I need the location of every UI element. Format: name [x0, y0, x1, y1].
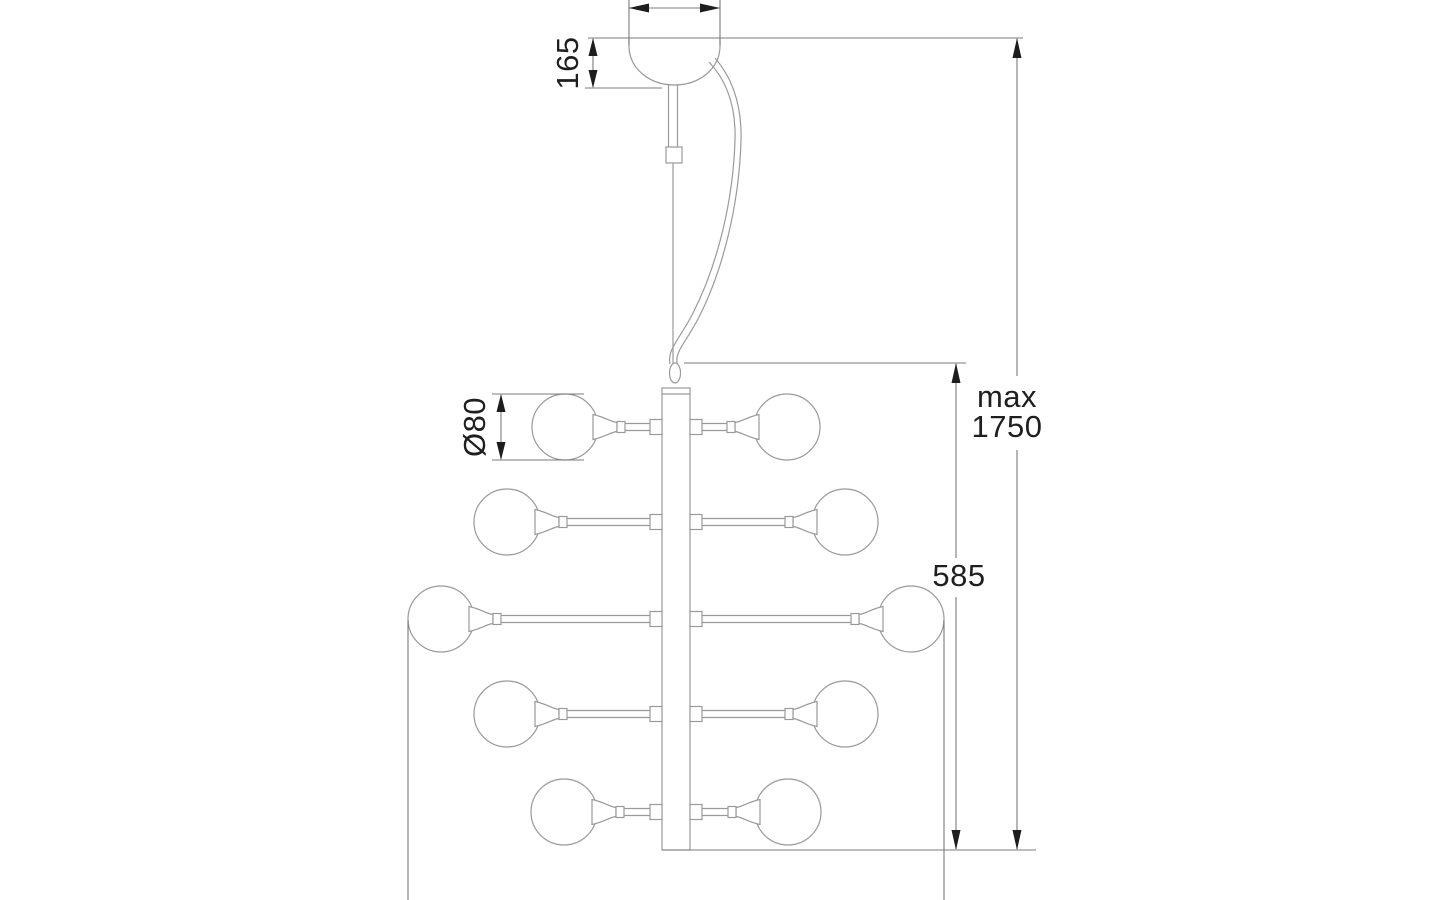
globe-arm-right: [690, 586, 944, 652]
globe-arm-left: [532, 394, 662, 460]
suspension-assembly: [666, 58, 741, 383]
globe-arm-right: [690, 779, 821, 845]
socket-trumpet: [535, 510, 559, 535]
glass-globe: [531, 779, 597, 845]
dimension-label-1750: 1750: [972, 409, 1043, 444]
dimension-arrow-up: [1013, 38, 1022, 58]
dimension-arrow-down: [952, 830, 961, 850]
globe-arm-right: [690, 394, 820, 460]
glass-globe: [474, 681, 540, 747]
glass-globe: [408, 586, 474, 652]
socket-trumpet: [736, 800, 760, 825]
dimension-arrow-down: [1013, 830, 1022, 850]
ceiling-canopy: [588, 38, 1023, 85]
dimension-arrow-down: [589, 70, 598, 88]
socket-trumpet: [735, 415, 759, 440]
globe-arm-left: [531, 779, 662, 845]
power-cord: [670, 62, 736, 364]
socket-trumpet: [793, 510, 817, 535]
dimension-arrow-up: [497, 394, 506, 412]
dimension-drawing-canvas: 165 Ø80 585 max 1750: [0, 0, 1440, 900]
dimension-label-165: 165: [550, 36, 585, 89]
glass-globe: [812, 489, 878, 555]
socket-trumpet: [592, 800, 616, 825]
socket-trumpet: [469, 607, 493, 632]
dimension-arrow-down: [497, 442, 506, 460]
dimension-arrow-right: [700, 4, 720, 13]
glass-globe: [878, 586, 944, 652]
glass-globe: [812, 681, 878, 747]
socket-trumpet: [535, 702, 559, 727]
glass-globe: [532, 394, 598, 460]
pendant-lamp-drawing: 165 Ø80 585 max 1750: [0, 0, 1440, 900]
hanging-loop: [670, 363, 681, 383]
glass-globe: [755, 779, 821, 845]
dimension-canopy-height: 165: [550, 36, 662, 89]
central-stem: [662, 388, 690, 850]
socket-trumpet: [793, 702, 817, 727]
dimension-arrow-up: [589, 38, 598, 56]
dimension-label-diameter: Ø80: [457, 397, 492, 457]
glass-globe: [754, 394, 820, 460]
cable-grip: [666, 147, 682, 163]
globe-arm-left: [474, 681, 662, 747]
glass-globe: [474, 489, 540, 555]
canopy-dome: [629, 38, 720, 85]
dimension-label-585: 585: [932, 558, 985, 593]
dimension-arrow-left: [629, 4, 649, 13]
globe-arm-right: [690, 489, 878, 555]
socket-trumpet: [859, 607, 883, 632]
globe-arm-left: [408, 586, 662, 652]
globe-arm-left: [474, 489, 662, 555]
globe-arm-right: [690, 681, 878, 747]
dimension-arrow-up: [952, 363, 961, 383]
socket-trumpet: [593, 415, 617, 440]
